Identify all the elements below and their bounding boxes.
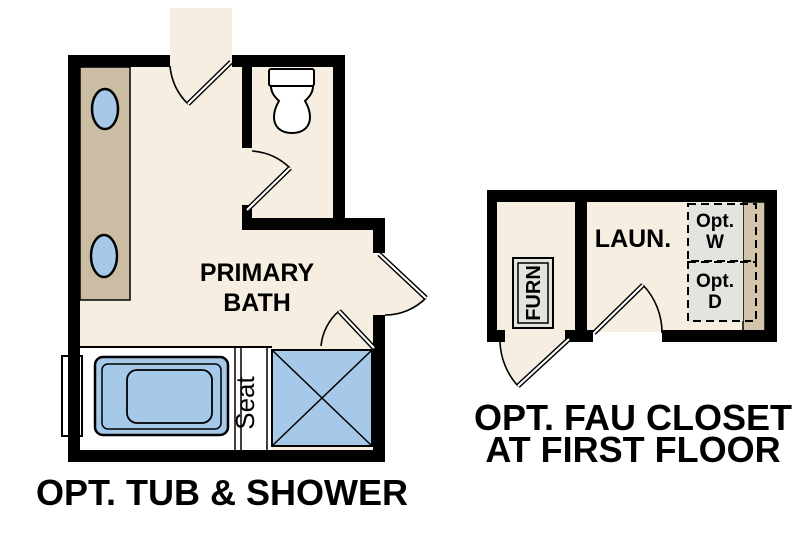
vanity-counter (80, 67, 130, 300)
primary-bath-plan: PRIMARY BATH Seat OPT. TUB & SHOWER (36, 8, 426, 513)
fau-caption-line2: AT FIRST FLOOR (485, 429, 780, 470)
washer-label-line2: W (706, 232, 724, 253)
laundry-wall-bottom-right (662, 330, 777, 342)
primary-bath-label-line1: PRIMARY (200, 259, 315, 287)
wall-wc-left (242, 55, 252, 148)
floorplan-page: PRIMARY BATH Seat OPT. TUB & SHOWER Opt.… (0, 0, 810, 536)
laundry-wall-bottom-stub-left (487, 330, 505, 342)
dryer-label-line2: D (708, 292, 722, 313)
wall-step (242, 218, 385, 230)
furnace-icon: FURN (513, 258, 553, 328)
laundry-wall-right (765, 190, 777, 342)
laundry-wall-left (487, 190, 497, 342)
wall-right-lower (373, 315, 385, 450)
wall-right-mid (373, 230, 385, 253)
wall-bottom (68, 450, 385, 462)
sink-icon (91, 235, 117, 277)
wall-right-upper (333, 55, 345, 230)
laundry-wall-top (487, 190, 777, 202)
fau-closet-plan: Opt. W Opt. D FURN (474, 190, 792, 470)
seat-label: Seat (230, 375, 260, 429)
furnace-label: FURN (523, 265, 545, 321)
tub-shower-caption: OPT. TUB & SHOWER (36, 472, 408, 513)
toilet-tank (269, 69, 314, 86)
tub-basin (127, 370, 212, 423)
primary-bath-label-line2: BATH (223, 289, 291, 317)
hall-floor-through-door (170, 8, 232, 67)
floorplan-canvas: PRIMARY BATH Seat OPT. TUB & SHOWER Opt.… (0, 0, 810, 536)
toilet-bowl (271, 86, 313, 133)
wall-left (68, 55, 80, 462)
fau-door-swing-floor (500, 330, 569, 386)
shower-icon (272, 350, 372, 446)
tub-icon (95, 357, 228, 435)
washer-label-line1: Opt. (696, 211, 734, 232)
dryer-label-line1: Opt. (696, 271, 734, 292)
sink-icon (92, 89, 118, 129)
laundry-cabinet-strip (743, 202, 765, 332)
laundry-room-label: LAUN. (595, 225, 671, 253)
wall-top-left (68, 55, 170, 67)
laundry-wall-divider (575, 202, 587, 330)
